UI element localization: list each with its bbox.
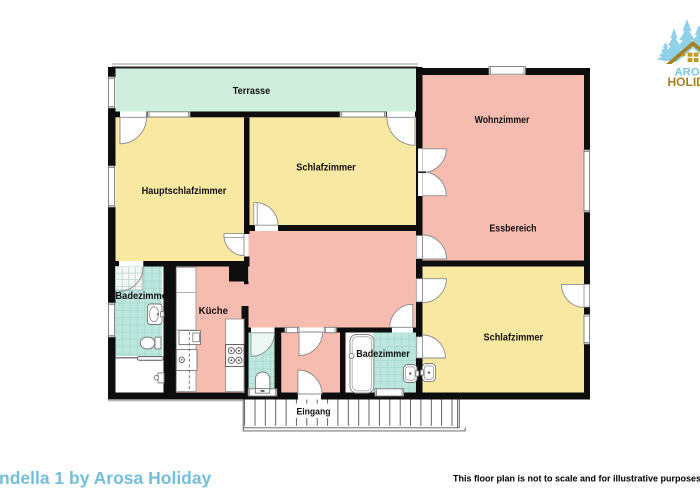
- svg-text:ndella 1 by Arosa Holiday: ndella 1 by Arosa Holiday: [0, 468, 212, 488]
- svg-text:Badezimmer: Badezimmer: [116, 291, 171, 302]
- svg-text:Schlafzimmer: Schlafzimmer: [484, 333, 544, 344]
- svg-text:This floor plan is not to scal: This floor plan is not to scale and for …: [453, 474, 700, 484]
- svg-text:Essbereich: Essbereich: [489, 223, 536, 234]
- svg-text:HOLIDAY: HOLIDAY: [668, 75, 700, 89]
- svg-text:Eingang: Eingang: [297, 407, 331, 418]
- svg-text:Badezimmer: Badezimmer: [356, 349, 410, 360]
- svg-text:Hauptschlafzimmer: Hauptschlafzimmer: [142, 186, 227, 197]
- svg-text:Schlafzimmer: Schlafzimmer: [296, 163, 356, 174]
- svg-text:Küche: Küche: [199, 306, 229, 317]
- svg-text:Wohnzimmer: Wohnzimmer: [475, 115, 530, 126]
- svg-text:Terrasse: Terrasse: [233, 86, 271, 97]
